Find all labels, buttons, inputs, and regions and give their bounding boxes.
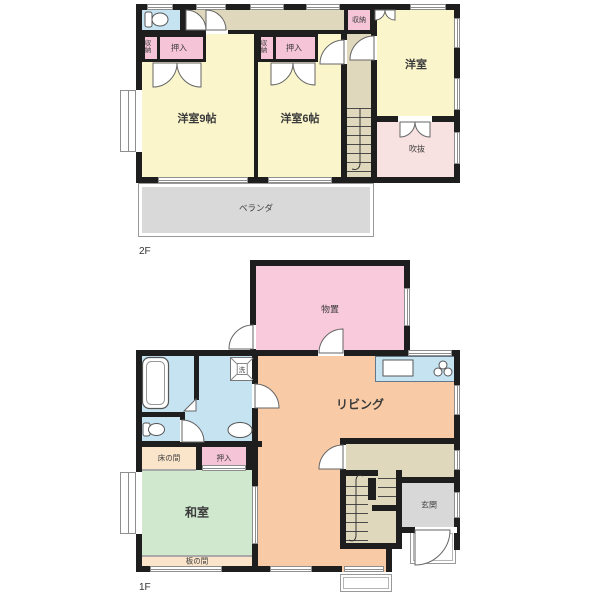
wall-segment [396,477,460,483]
wall-segment [372,505,396,511]
floor1-label: 1F [139,582,151,593]
entrance-porch [410,530,456,564]
label-oshiire-a: 押入 [171,43,187,54]
wall-segment [386,549,392,572]
window [454,18,460,48]
bay-window [120,472,136,534]
room-living-bottom [258,438,342,566]
window [250,4,284,10]
window [270,566,312,572]
wall-segment [136,4,142,90]
label-tokonoma: 床の間 [158,453,181,464]
stairs-1f-treads [346,478,368,544]
wall-segment [250,260,410,266]
label-void: 吹抜 [409,144,425,155]
label-storage-top: 収納 [352,15,366,25]
window [454,132,460,164]
sliding-door [344,566,384,572]
window [410,4,446,10]
window [306,4,340,10]
label-oshiire-b: 押入 [286,43,302,54]
window [196,4,226,10]
window [158,177,248,183]
wall-segment [368,478,376,500]
wall-segment [136,412,185,417]
label-laundry: 洗 [237,363,248,375]
kitchen-counter [375,356,460,382]
window [150,566,222,572]
label-japanese: 和室 [185,504,209,521]
wall-segment [341,30,347,177]
label-living: リビング [336,396,384,413]
label-storage-a: 収納 [144,40,152,54]
stairs-2f-treads [345,100,371,177]
tokonoma-edge [142,469,196,471]
window [454,78,460,110]
wall-segment [396,527,415,533]
window [268,177,332,183]
sliding-door [202,465,246,471]
room-toilet-2f [142,10,180,30]
wall-segment [377,116,454,122]
porch [340,574,392,592]
label-entrance: 玄関 [421,500,437,511]
bay-window [120,90,136,152]
stairs-1f-treads [378,470,396,505]
label-balcony: ベランダ [239,202,273,214]
sliding-door [252,486,258,544]
floor2-label: 2F [139,246,151,257]
label-western: 洋室 [405,56,427,72]
label-western6: 洋室6帖 [280,110,319,126]
wall-segment [340,438,460,444]
label-storage-b: 収納 [260,40,268,54]
window [454,492,460,518]
floor-plan-image: 洋室9帖 洋室6帖 洋室 吹抜 ベランダ 押入 押入 収納 収納 収納 2F 物… [0,0,600,600]
window [404,288,410,326]
wall-segment [246,447,252,470]
wall-segment [340,438,346,549]
label-storeroom: 物置 [321,303,339,316]
wall-segment [340,543,402,549]
wall-segment [136,350,142,472]
label-oshiire-1f: 押入 [217,453,232,464]
wall-segment [194,356,199,400]
wall-segment [371,10,377,177]
wall-segment [250,260,256,355]
label-western9: 洋室9帖 [177,110,216,126]
window [454,385,460,415]
window [454,450,460,470]
wall-segment [340,470,378,476]
window [408,350,452,356]
window [147,4,173,10]
wall-segment [254,30,258,177]
label-itanoma: 板の間 [186,556,209,567]
